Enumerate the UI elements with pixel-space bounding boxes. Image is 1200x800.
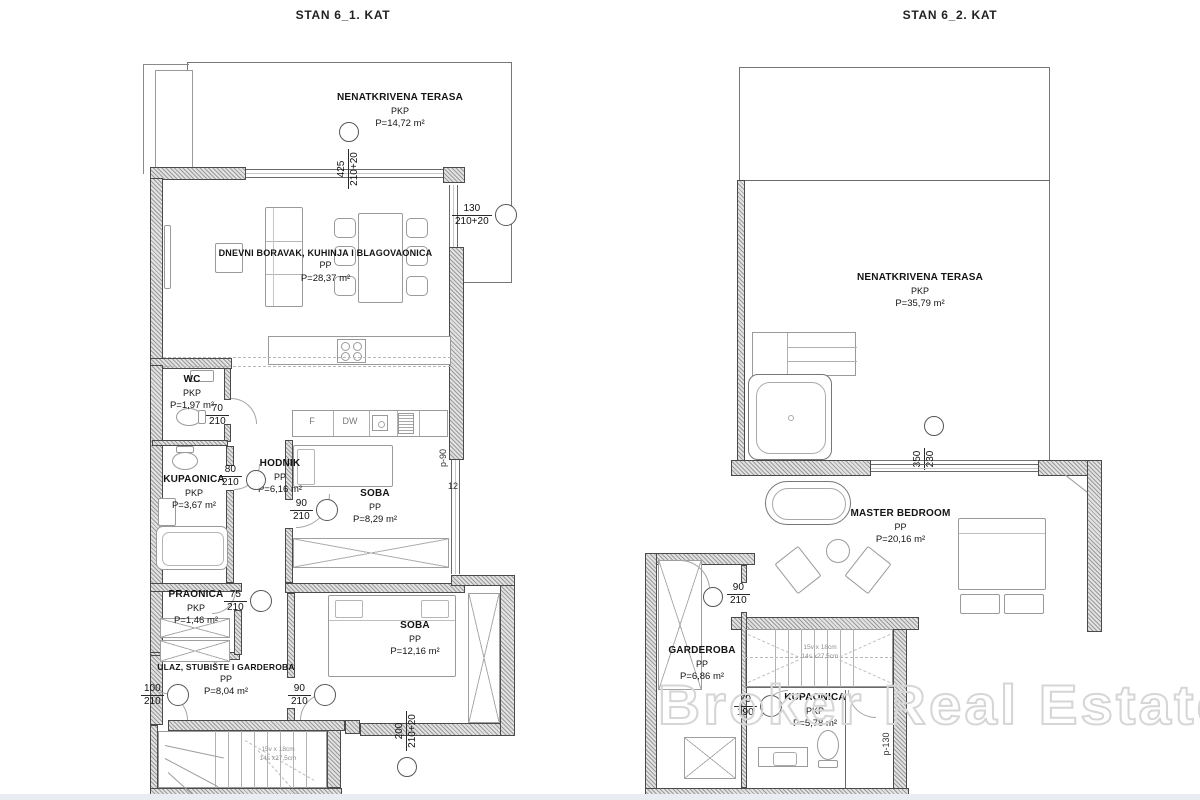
wall [168,720,345,731]
dim-circle [495,204,517,226]
wall [741,565,747,583]
stairs-note: 15v x 18cm14s x27,5cm [240,746,316,764]
dim-circle [246,470,266,490]
room-label-soba1: SOBA PP P=8,29 m² [330,488,420,526]
wall [327,730,341,788]
room-label-dnevni: DNEVNI BORAVAK, KUHINJA I BLAGOVAONICA P… [218,248,433,284]
dim-wc-door: 70210 [206,403,229,427]
nightstand [960,594,1000,614]
wall [451,575,515,586]
toilet-tank [198,410,206,424]
toilet-tank [176,446,194,453]
hot-tub [748,374,832,460]
dim-terrace-vertical: 425210+20 [335,137,361,201]
dim-gard-door: 90210 [727,582,750,606]
chair [334,218,356,238]
wardrobe [468,593,500,723]
washing-machine [398,413,414,434]
wardrobe [293,538,449,568]
wall [731,460,871,476]
nightstand [1004,594,1044,614]
dim-window-right: 130210+20 [452,203,517,227]
dim-praonica-door: 75210 [224,589,272,613]
floorplan-canvas: STAN 6_1. KAT [0,0,1200,800]
dim-twelve: 12 [448,481,458,491]
plan1-shaft [155,70,193,172]
toilet-tank [818,760,838,768]
plan1-title: STAN 6_1. KAT [223,8,463,22]
dishwasher-label: DW [332,416,368,426]
stove [337,339,366,363]
sliding-door [871,464,1038,472]
wall [285,528,293,583]
fridge-label: F [292,416,332,426]
wall [737,180,745,461]
wall [150,167,246,180]
dim-soba1-door: 90210 [290,498,338,522]
bottom-strip [0,794,1200,800]
wall [150,725,158,796]
stairs-note: 15v x 18cm14s x27,5cm [780,644,860,662]
wall [226,446,234,466]
dim-circle [250,590,272,612]
terrace-top-line [739,180,1050,181]
dim-ulaz-door: 90210 [288,683,336,707]
chair [406,218,428,238]
wall [285,583,465,593]
dim-circle [703,587,723,607]
dim-circle [397,757,417,777]
dim-circle [167,684,189,706]
window-parapet [451,460,460,574]
room-label-master: MASTER BEDROOM PP P=20,16 m² [808,508,993,546]
wall [150,178,163,365]
room-label-terasa2: NENATKRIVENA TERASA PKP P=35,79 m² [810,272,1030,310]
room-label-terasa: NENATKRIVENA TERASA PKP P=14,72 m² [290,92,510,130]
dim-circle [316,499,338,521]
dim-circle [314,684,336,706]
wall [449,247,464,460]
kitchen-sink [372,415,388,431]
upper-cabinet-dash [163,357,451,358]
dim-kup-door: 80210 [219,464,242,488]
room-label-soba2: SOBA PP P=12,16 m² [372,620,458,658]
upper-cabinet-dash [163,366,451,367]
wall [500,575,515,736]
bathtub [156,526,228,570]
door-arc [231,398,257,424]
wall [443,167,465,183]
dim-parapet: p-90 [437,441,449,475]
wardrobe [684,737,736,779]
tv-shelf [164,225,171,289]
bath-vanity [758,747,808,767]
dim-entry-door: 100210 [141,683,189,707]
wall [224,368,231,400]
wall [360,723,515,736]
toilet [172,452,198,470]
washer-cabinet [160,640,230,662]
wall [345,720,360,734]
dim-soba2-vertical: 200210+20 [393,699,419,763]
terrace-shelf [752,332,856,376]
plan2-title: STAN 6_2. KAT [830,8,1070,22]
wall [1087,460,1102,632]
watermark: Broker Real Estate [658,672,1200,737]
